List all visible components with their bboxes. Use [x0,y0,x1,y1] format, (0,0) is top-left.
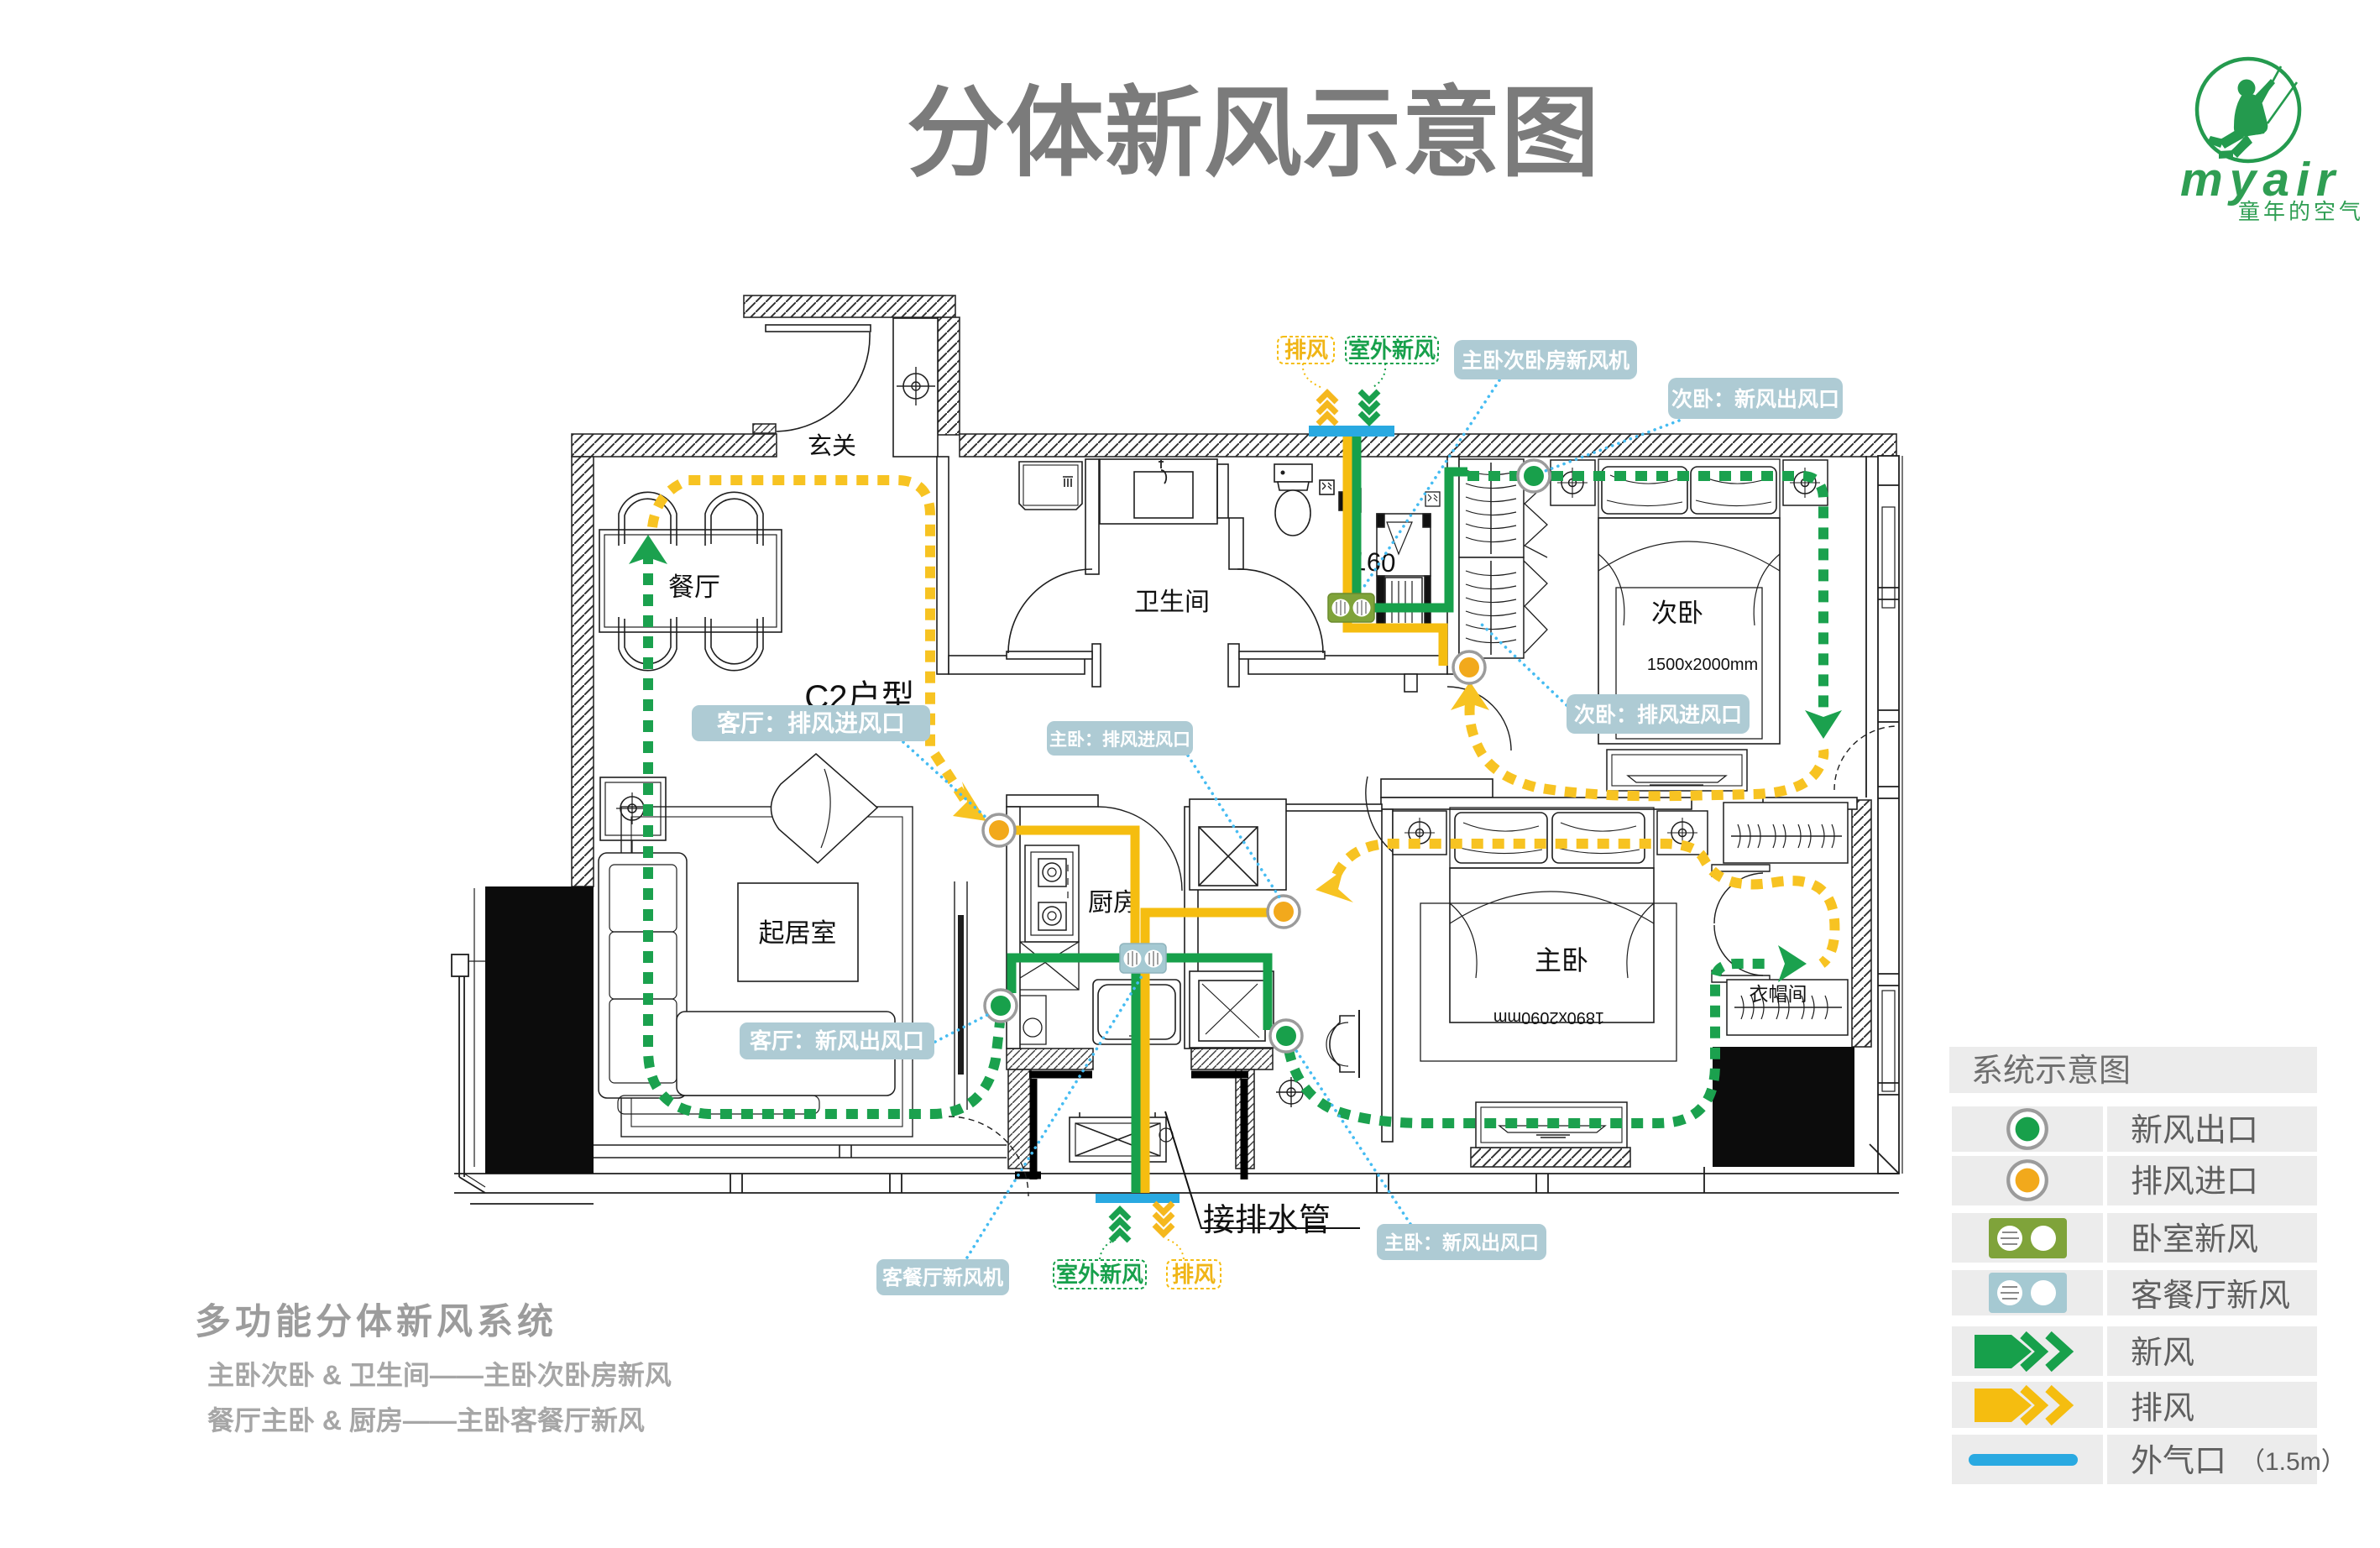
svg-text:卫生间: 卫生间 [1134,588,1210,616]
svg-text:接排水管: 接排水管 [1203,1203,1331,1238]
svg-text:主卧：新风出风口: 主卧：新风出风口 [1384,1232,1539,1253]
svg-text:客厅：排风进风口: 客厅：排风进风口 [717,709,905,736]
svg-text:外气口: 外气口 [2131,1444,2226,1479]
svg-text:分体新风示意图: 分体新风示意图 [907,78,1600,188]
svg-text:次卧：排风进风口: 次卧：排风进风口 [1574,703,1742,727]
svg-text:排风: 排风 [1172,1262,1216,1287]
svg-text:餐厅主卧 & 厨房——主卧客餐厅新风: 餐厅主卧 & 厨房——主卧客餐厅新风 [207,1405,645,1436]
svg-text:室外新风: 室外新风 [1056,1262,1143,1287]
svg-text:排风: 排风 [1284,337,1328,363]
svg-text:主卧：排风进风口: 主卧：排风进风口 [1049,730,1190,750]
svg-text:1500x2000mm: 1500x2000mm [1647,656,1758,674]
svg-text:客餐厅新风机: 客餐厅新风机 [882,1266,1003,1289]
svg-text:主卧: 主卧 [1535,945,1588,975]
svg-text:排风: 排风 [2131,1391,2194,1426]
svg-text:主卧次卧 & 卫生间——主卧次卧房新风: 主卧次卧 & 卫生间——主卧次卧房新风 [207,1360,672,1390]
svg-text:主卧次卧房新风机: 主卧次卧房新风机 [1462,348,1629,373]
svg-text:（1.5m）: （1.5m） [2240,1448,2346,1476]
svg-text:1890x2090mm: 1890x2090mm [1493,1008,1604,1027]
svg-text:餐厅: 餐厅 [668,573,720,602]
svg-text:起居室: 起居室 [759,918,837,948]
svg-text:次卧：新风出风口: 次卧：新风出风口 [1671,387,1839,411]
svg-text:客厅：新风出风口: 客厅：新风出风口 [750,1028,924,1054]
svg-text:客餐厅新风: 客餐厅新风 [2131,1279,2290,1314]
svg-text:新风: 新风 [2131,1336,2194,1371]
svg-text:多功能分体新风系统: 多功能分体新风系统 [195,1302,557,1342]
svg-text:童年的空气: 童年的空气 [2238,199,2364,224]
svg-text:室外新风: 室外新风 [1348,337,1436,363]
svg-text:衣帽间: 衣帽间 [1750,983,1807,1005]
svg-text:排风进口: 排风进口 [2131,1164,2258,1200]
svg-text:次卧: 次卧 [1651,599,1703,628]
svg-text:系统示意图: 系统示意图 [1971,1054,2131,1089]
svg-text:玄关: 玄关 [808,432,856,460]
svg-text:新风出口: 新风出口 [2131,1113,2258,1148]
svg-text:卧室新风: 卧室新风 [2131,1222,2258,1258]
